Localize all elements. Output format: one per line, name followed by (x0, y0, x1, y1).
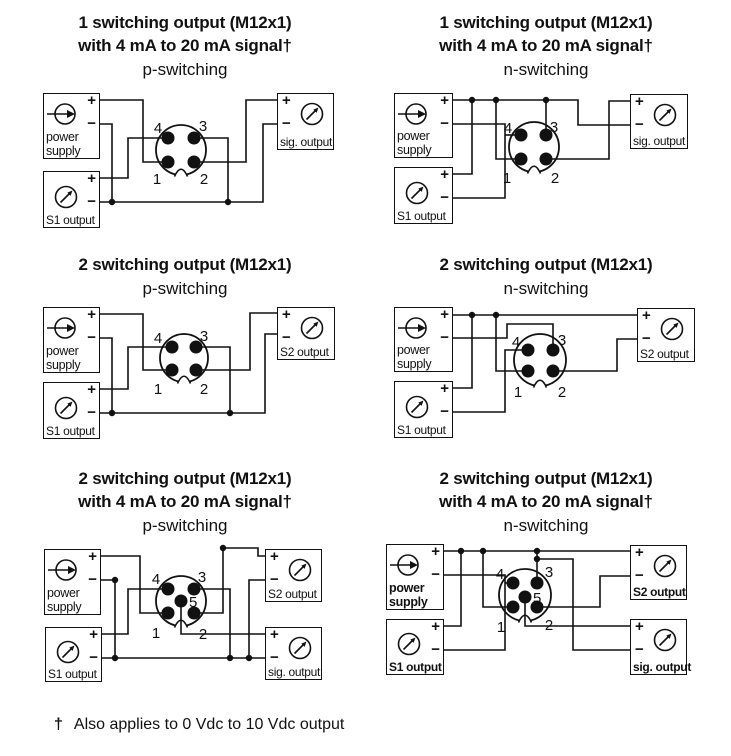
plus-terminal: + (89, 628, 98, 642)
box-label: S2 output (633, 585, 686, 599)
box-label: power supply (46, 130, 94, 158)
sig-output-box: + − sig. output (630, 619, 687, 675)
box-label: S2 output (280, 345, 329, 359)
sig-output-box: + − sig. output (265, 627, 322, 680)
wiring-geometry: 4 3 1 2 4 3 1 2 4 3 1 (0, 0, 731, 756)
wires-d2 (453, 100, 630, 198)
wires-d1 (100, 100, 277, 202)
box-label: S1 output (389, 660, 442, 674)
pin-label: 4 (512, 334, 520, 351)
minus-terminal: − (89, 651, 98, 665)
box-label: power supply (47, 586, 95, 614)
title-line: 1 switching output (M12x1) (10, 11, 360, 34)
power-supply-box: + − power supply (43, 93, 100, 159)
minus-terminal: − (88, 573, 97, 587)
meter-icon (287, 557, 313, 583)
footnote-text: Also applies to 0 Vdc to 10 Vdc output (74, 716, 344, 733)
s1-output-box: + − S1 output (43, 171, 100, 228)
wires-d3 (100, 313, 277, 413)
title-d6: 2 switching output (M12x1) with 4 mA to … (371, 467, 721, 538)
wires-d4 (453, 315, 637, 412)
pin-label: 2 (545, 617, 553, 634)
minus-terminal: − (270, 651, 279, 665)
s2-output-box: + − S2 output (277, 307, 335, 360)
sig-output-box: + − sig. output (277, 93, 334, 150)
plus-terminal: + (431, 620, 440, 634)
plus-terminal: + (87, 383, 96, 397)
box-label: sig. output (268, 665, 320, 679)
meter-icon (53, 395, 79, 421)
pin-label: 1 (154, 381, 162, 398)
s1-output-box: + − S1 output (45, 627, 102, 682)
box-label: sig. output (280, 135, 332, 149)
title-line: with 4 mA to 20 mA signal† (371, 34, 721, 57)
pin-label: 5 (533, 590, 541, 607)
subtitle: n-switching (371, 276, 721, 301)
minus-terminal: − (87, 117, 96, 131)
power-supply-box: + − power supply (394, 307, 453, 372)
s1-output-box: + − S1 output (43, 382, 100, 439)
plus-terminal: + (87, 308, 96, 322)
minus-terminal: − (87, 406, 96, 420)
pin-label: 1 (153, 171, 161, 188)
minus-terminal: − (431, 643, 440, 657)
minus-terminal: − (642, 332, 651, 346)
title-d5: 2 switching output (M12x1) with 4 mA to … (10, 467, 360, 538)
pin-label: 1 (503, 170, 511, 187)
box-label: S2 output (640, 347, 689, 361)
box-label: sig. output (633, 660, 691, 674)
minus-terminal: − (440, 405, 449, 419)
meter-icon (299, 101, 325, 127)
pin-label: 1 (497, 619, 505, 636)
pin-label: 3 (198, 569, 206, 586)
meter-icon (299, 315, 325, 341)
pin-label: 4 (496, 566, 504, 583)
minus-terminal: − (635, 643, 644, 657)
title-line: 2 switching output (M12x1) (10, 253, 360, 276)
current-source-icon (390, 550, 426, 580)
title-d1: 1 switching output (M12x1) with 4 mA to … (10, 11, 360, 82)
plus-terminal: + (635, 620, 644, 634)
meter-icon (55, 639, 81, 665)
current-source-icon (48, 555, 84, 585)
pin-label: 3 (545, 564, 553, 581)
pin-label: 2 (551, 170, 559, 187)
subtitle: n-switching (371, 513, 721, 538)
plus-terminal: + (440, 308, 449, 322)
pin-label: 2 (199, 626, 207, 643)
current-source-icon (398, 99, 434, 129)
plus-terminal: + (87, 172, 96, 186)
s2-output-box: + − S2 output (630, 545, 687, 600)
minus-terminal: − (635, 118, 644, 132)
plus-terminal: + (282, 308, 291, 322)
power-supply-box: + − power supply (394, 93, 453, 158)
minus-terminal: − (87, 195, 96, 209)
plus-terminal: + (635, 95, 644, 109)
box-label: S2 output (268, 587, 317, 601)
footnote: †Also applies to 0 Vdc to 10 Vdc output (54, 716, 344, 734)
pin-label: 3 (199, 118, 207, 135)
meter-icon (652, 102, 678, 128)
power-supply-box: + − power supply (43, 307, 100, 373)
plus-terminal: + (270, 550, 279, 564)
meter-icon (659, 316, 685, 342)
pin-label: 3 (558, 332, 566, 349)
box-label: S1 output (48, 667, 97, 681)
plus-terminal: + (635, 546, 644, 560)
meter-icon (404, 180, 430, 206)
plus-terminal: + (270, 628, 279, 642)
title-d2: 1 switching output (M12x1) with 4 mA to … (371, 11, 721, 82)
plus-terminal: + (88, 550, 97, 564)
box-label: power supply (397, 343, 445, 371)
minus-terminal: − (282, 331, 291, 345)
meter-icon (404, 394, 430, 420)
title-d4: 2 switching output (M12x1) n-switching (371, 253, 721, 301)
box-label: S1 output (46, 424, 95, 438)
pin-label: 1 (514, 384, 522, 401)
sig-output-box: + − sig. output (630, 94, 688, 149)
s1-output-box: + − S1 output (394, 381, 453, 438)
title-line: 2 switching output (M12x1) (371, 253, 721, 276)
s1-output-box: + − S1 output (394, 167, 453, 224)
pins-d1 (109, 132, 231, 206)
minus-terminal: − (270, 573, 279, 587)
plus-terminal: + (440, 94, 449, 108)
subtitle: n-switching (371, 57, 721, 82)
subtitle: p-switching (10, 276, 360, 301)
title-d3: 2 switching output (M12x1) p-switching (10, 253, 360, 301)
pin-label: 4 (504, 120, 512, 137)
current-source-icon (398, 313, 434, 343)
box-label: power supply (397, 129, 445, 157)
current-source-icon (47, 99, 83, 129)
title-line: 2 switching output (M12x1) (10, 467, 360, 490)
meter-icon (652, 627, 678, 653)
pin-label: 1 (152, 625, 160, 642)
m12-wiring-diagram-sheet: 4 3 1 2 4 3 1 2 4 3 1 (0, 0, 731, 756)
box-label: S1 output (46, 213, 95, 227)
s1-output-box: + − S1 output (386, 619, 444, 675)
pin-label: 4 (154, 120, 162, 137)
meter-icon (53, 184, 79, 210)
pin-label: 4 (152, 571, 160, 588)
box-label: S1 output (397, 423, 446, 437)
plus-terminal: + (440, 382, 449, 396)
title-line: 1 switching output (M12x1) (371, 11, 721, 34)
box-label: S1 output (397, 209, 446, 223)
pins-d5 (112, 545, 252, 661)
pin-label: 2 (200, 381, 208, 398)
pin-label: 2 (558, 384, 566, 401)
title-line: with 4 mA to 20 mA signal† (10, 34, 360, 57)
power-supply-box: + − power supply (44, 549, 101, 615)
minus-terminal: − (431, 568, 440, 582)
title-line: 2 switching output (M12x1) (371, 467, 721, 490)
pin-label: 2 (200, 171, 208, 188)
pin-label: 5 (189, 594, 197, 611)
pin-label: 4 (154, 330, 162, 347)
meter-icon (652, 553, 678, 579)
s2-output-box: + − S2 output (265, 549, 322, 602)
plus-terminal: + (642, 309, 651, 323)
plus-terminal: + (440, 168, 449, 182)
title-line: with 4 mA to 20 mA signal† (371, 490, 721, 513)
plus-terminal: + (282, 94, 291, 108)
minus-terminal: − (87, 331, 96, 345)
plus-terminal: + (87, 94, 96, 108)
title-line: with 4 mA to 20 mA signal† (10, 490, 360, 513)
subtitle: p-switching (10, 57, 360, 82)
meter-icon (396, 631, 422, 657)
minus-terminal: − (440, 191, 449, 205)
minus-terminal: − (282, 117, 291, 131)
box-label: power supply (46, 344, 94, 372)
pin-label: 3 (200, 328, 208, 345)
meter-icon (287, 635, 313, 661)
s2-output-box: + − S2 output (637, 308, 695, 362)
current-source-icon (47, 313, 83, 343)
minus-terminal: − (635, 569, 644, 583)
plus-terminal: + (431, 545, 440, 559)
box-label: sig. output (633, 134, 685, 148)
dagger-symbol: † (54, 716, 63, 733)
subtitle: p-switching (10, 513, 360, 538)
box-label: power supply (389, 581, 437, 609)
power-supply-box: + − power supply (386, 544, 444, 610)
pin-label: 3 (550, 119, 558, 136)
